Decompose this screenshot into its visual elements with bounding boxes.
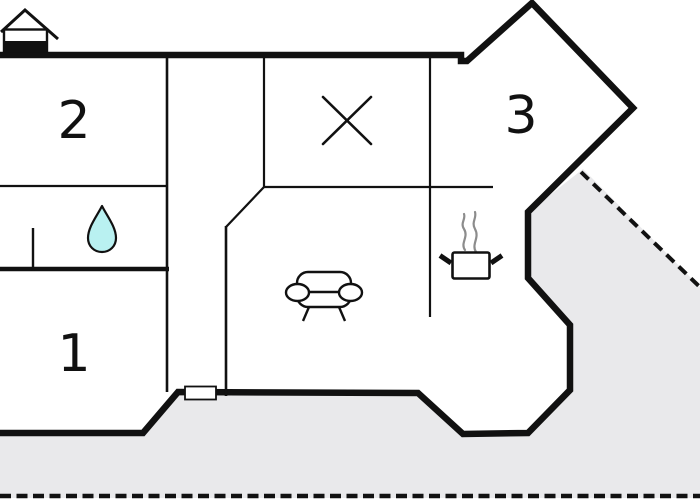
room-label-1: 1 [57, 324, 90, 384]
sofa-armrest-right [339, 284, 362, 301]
door-window-marker [185, 387, 216, 400]
house-icon [1, 10, 58, 52]
house-base [4, 41, 47, 52]
sofa-armrest-left [286, 284, 309, 301]
floor-plan-page: 2 3 1 [0, 0, 700, 500]
room-label-3: 3 [504, 86, 537, 146]
room-label-2: 2 [57, 91, 90, 151]
floor-plan-canvas: 2 3 1 [0, 0, 700, 500]
pot-body [453, 253, 490, 279]
